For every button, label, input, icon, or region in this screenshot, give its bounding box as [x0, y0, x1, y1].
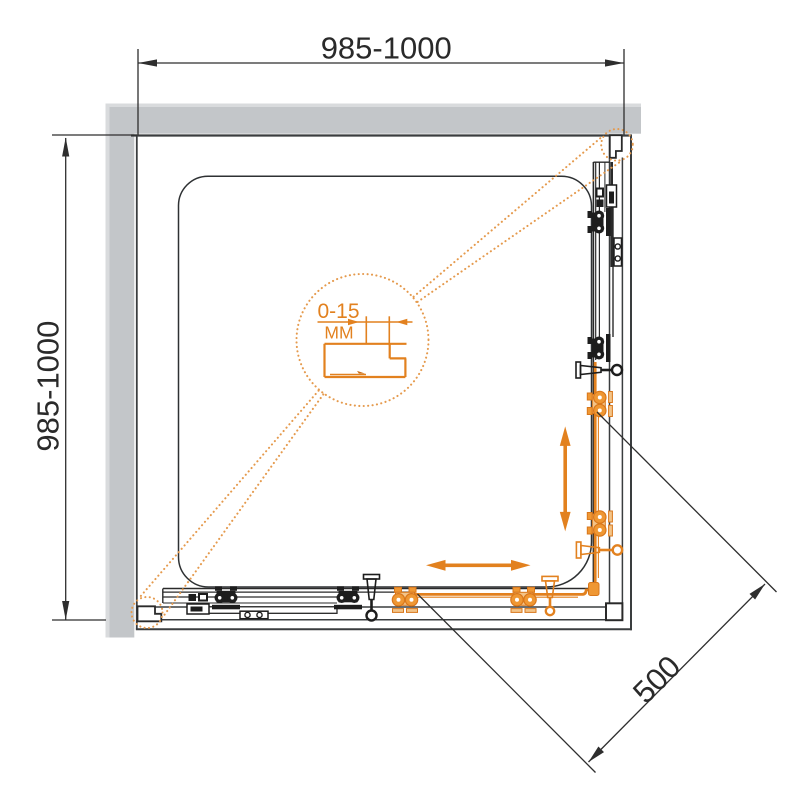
svg-text:0-15: 0-15 — [317, 300, 359, 323]
svg-text:985-1000: 985-1000 — [321, 30, 452, 65]
svg-text:985-1000: 985-1000 — [30, 321, 65, 452]
svg-text:ММ: ММ — [324, 323, 353, 343]
